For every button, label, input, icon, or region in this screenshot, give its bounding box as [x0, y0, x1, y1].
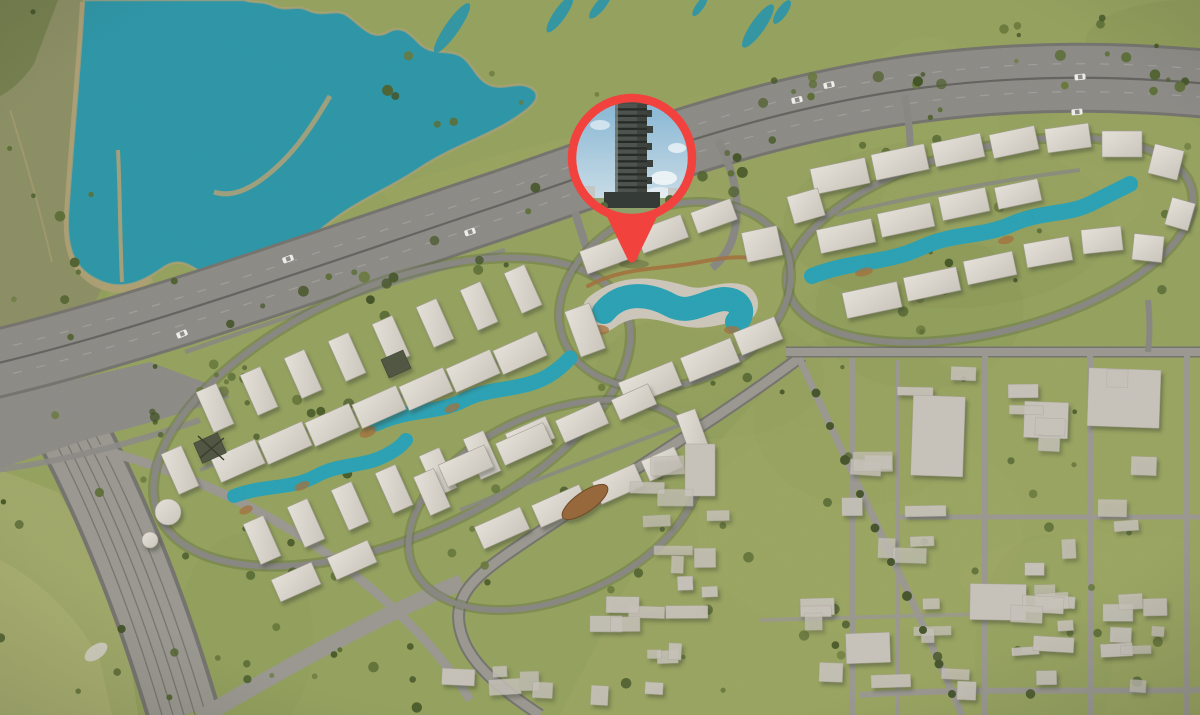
- map-canvas: [0, 0, 1200, 715]
- masterplan-map: [0, 0, 1200, 715]
